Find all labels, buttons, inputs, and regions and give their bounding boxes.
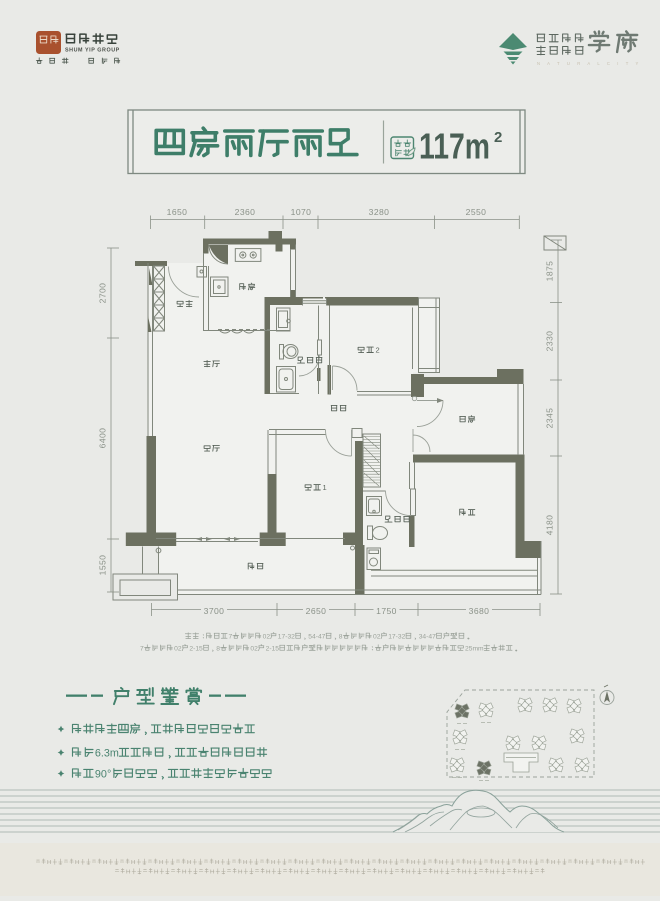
svg-text:2550: 2550: [466, 207, 487, 217]
svg-text:17-32: 17-32: [278, 634, 295, 641]
svg-text:1750: 1750: [376, 606, 397, 616]
svg-text:8: 8: [216, 646, 220, 653]
svg-text:34-47: 34-47: [419, 634, 436, 641]
svg-text:1550: 1550: [98, 555, 108, 576]
svg-text:2360: 2360: [235, 207, 256, 217]
svg-text:1: 1: [323, 483, 327, 492]
svg-text:25mm: 25mm: [465, 646, 484, 653]
svg-text:°: °: [107, 769, 111, 781]
svg-text:1650: 1650: [167, 207, 188, 217]
svg-text:3280: 3280: [369, 207, 390, 217]
svg-text:2345: 2345: [545, 408, 555, 429]
svg-text:2-15: 2-15: [189, 646, 203, 653]
svg-text:90: 90: [95, 769, 107, 781]
svg-text:02: 02: [250, 646, 258, 653]
svg-text:N A T U R A L C I T Y: N A T U R A L C I T Y: [537, 61, 641, 66]
svg-text:SHUM YIP GROUP: SHUM YIP GROUP: [65, 48, 120, 54]
svg-text:1875: 1875: [545, 261, 555, 282]
svg-text:4180: 4180: [545, 515, 555, 536]
svg-text:3700: 3700: [204, 606, 225, 616]
svg-text:1070: 1070: [291, 207, 312, 217]
svg-text:02: 02: [373, 634, 381, 641]
svg-text:54-47: 54-47: [308, 634, 325, 641]
svg-text:02: 02: [263, 634, 271, 641]
svg-text:117m: 117m: [419, 126, 490, 167]
svg-text:2700: 2700: [98, 283, 108, 304]
svg-text:2-15: 2-15: [266, 646, 280, 653]
svg-text:8: 8: [339, 634, 343, 641]
svg-text:6.3m: 6.3m: [95, 748, 119, 760]
svg-text:2: 2: [376, 346, 380, 355]
svg-text:02: 02: [174, 646, 182, 653]
svg-text:6400: 6400: [98, 428, 108, 449]
svg-text:3680: 3680: [469, 606, 490, 616]
svg-text:7: 7: [140, 646, 144, 653]
svg-text:2330: 2330: [545, 331, 555, 352]
svg-text:17-32: 17-32: [388, 634, 405, 641]
svg-text:2: 2: [494, 129, 502, 146]
svg-text:7: 7: [229, 634, 233, 641]
svg-text:2650: 2650: [306, 606, 327, 616]
